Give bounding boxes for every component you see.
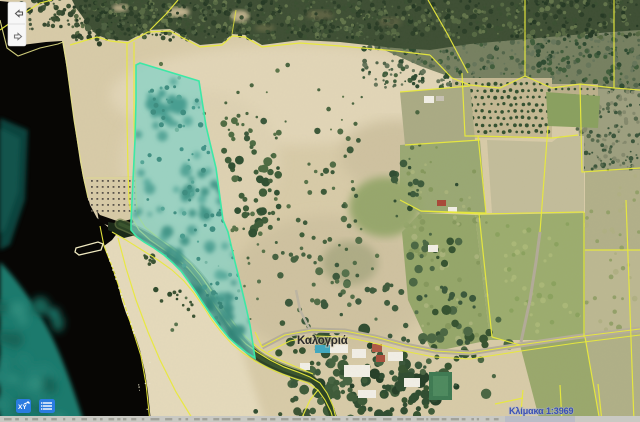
svg-text:XY: XY: [18, 404, 27, 411]
svg-text:Κλίμακα 1:3969: Κλίμακα 1:3969: [509, 406, 574, 416]
svg-text:Καλογριά: Καλογριά: [297, 335, 348, 347]
